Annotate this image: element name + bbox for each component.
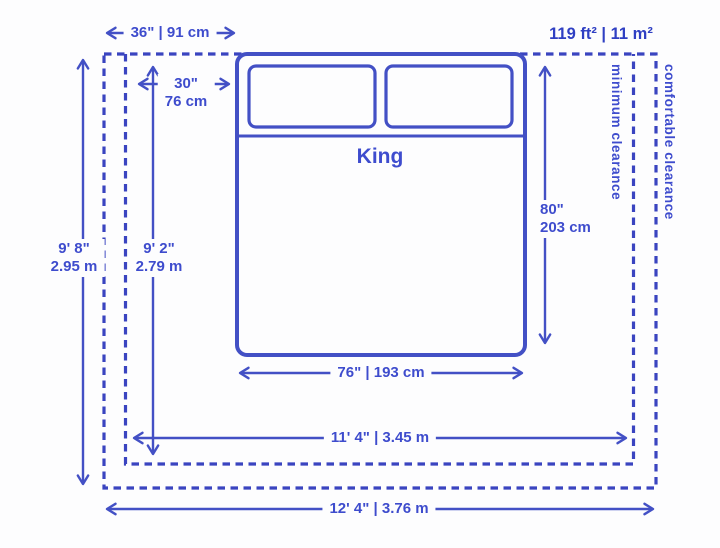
bed-length-label: 80" 203 cm: [533, 200, 598, 238]
comfortable-width-label: 12' 4" | 3.76 m: [322, 499, 435, 519]
bed-outline: [237, 54, 525, 355]
comfortable-height-label: 9' 8" 2.95 m: [44, 239, 105, 277]
minimum-height-label: 9' 2" 2.79 m: [129, 239, 190, 277]
minimum-clearance-label: minimum clearance: [607, 64, 625, 200]
side-clearance-label: 36" | 91 cm: [124, 23, 217, 43]
bed-size-name: King: [350, 147, 411, 167]
pillow-width-label: 30" 76 cm: [158, 74, 215, 112]
minimum-width-label: 11' 4" | 3.45 m: [324, 428, 436, 448]
king-bed-dimensions-diagram: 36" | 91 cm 119 ft² | 11 m² 30" 76 cm Ki…: [0, 0, 720, 548]
comfortable-clearance-label: comfortable clearance: [660, 64, 678, 220]
room-area-label: 119 ft² | 11 m²: [549, 25, 653, 43]
bed-width-label: 76" | 193 cm: [330, 363, 431, 383]
